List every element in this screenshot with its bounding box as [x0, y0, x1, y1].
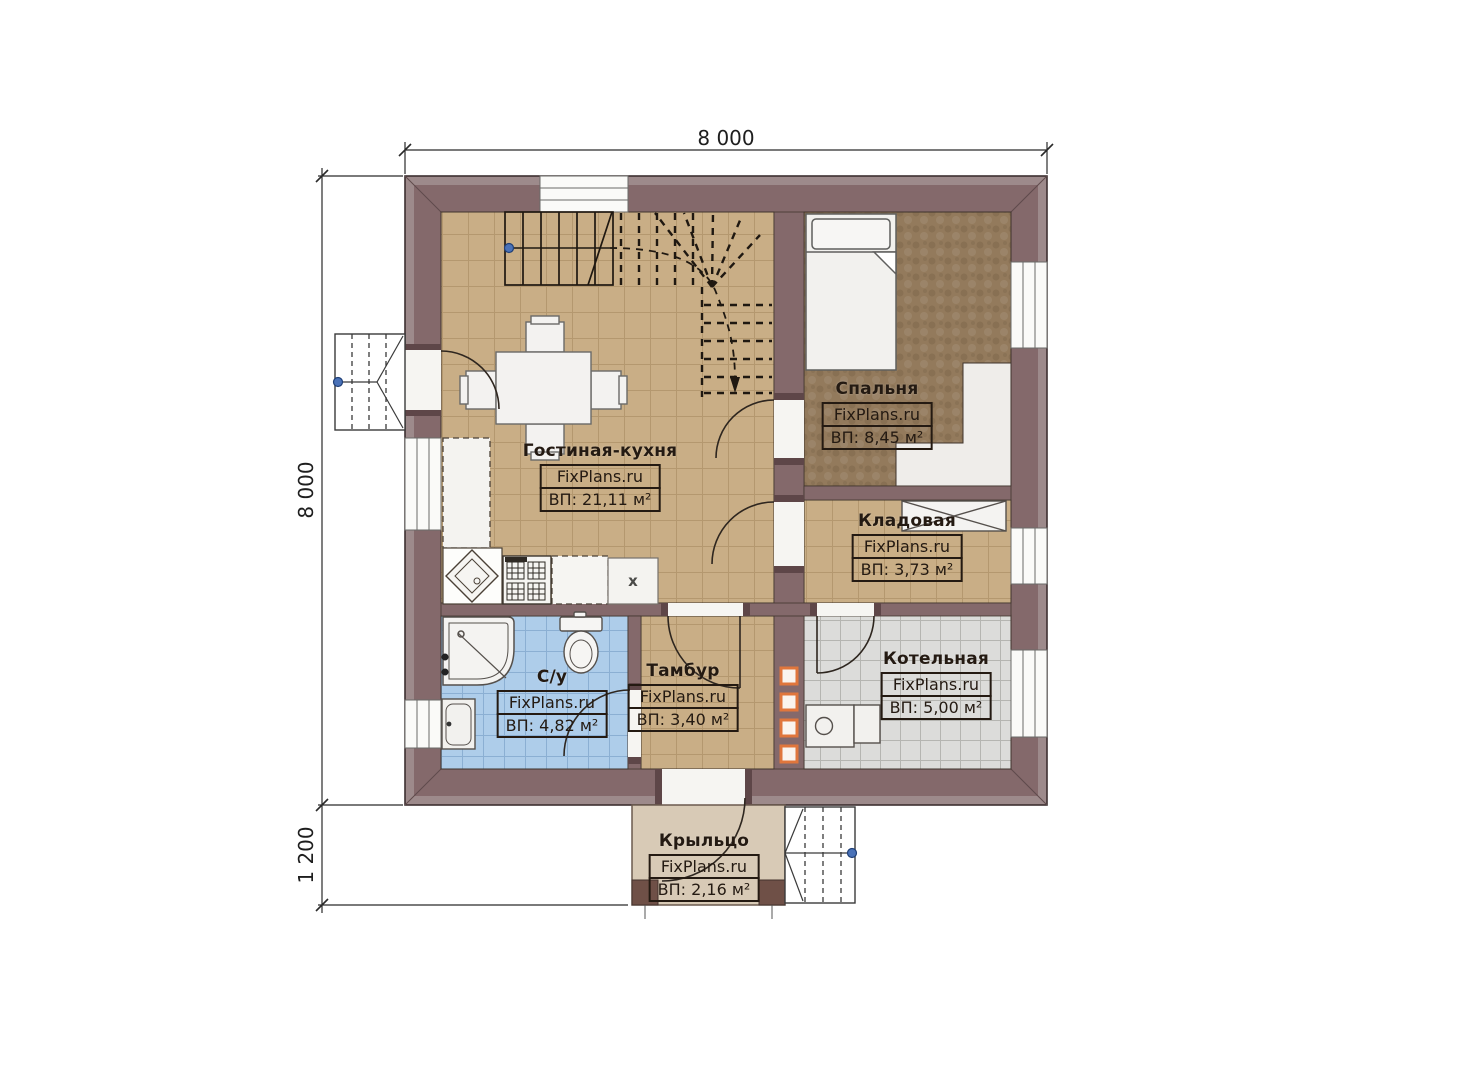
- window-left-bathroom: [405, 700, 441, 748]
- watermark-brand: FixPlans.ru: [852, 534, 963, 559]
- boiler-unit: [806, 705, 880, 747]
- window-right-storage: [1011, 528, 1047, 584]
- room-name: Котельная: [881, 649, 992, 669]
- window-right-bedroom: [1011, 262, 1047, 348]
- room-label-bathroom: С/у FixPlans.ru ВП: 4,82 м²: [497, 667, 608, 738]
- watermark-brand: FixPlans.ru: [540, 464, 661, 489]
- room-label-boiler-room: Котельная FixPlans.ru ВП: 5,00 м²: [881, 649, 992, 720]
- chair: [466, 371, 496, 409]
- side-entrance-steps: [335, 334, 405, 430]
- room-name: Гостиная-кухня: [523, 441, 678, 461]
- room-area: ВП: 5,00 м²: [881, 695, 992, 720]
- dimension-top-width: 8 000: [697, 126, 754, 150]
- room-area: ВП: 3,73 м²: [852, 557, 963, 582]
- room-name: Тамбур: [628, 661, 739, 681]
- fridge-label: x: [628, 572, 638, 590]
- toilet: [560, 612, 602, 673]
- window-left-kitchen: [405, 438, 441, 530]
- floor-plan: 8 000 8 000 1 200 x Гостиная-кухня FixPl…: [0, 0, 1473, 1080]
- watermark-brand: FixPlans.ru: [822, 402, 933, 427]
- room-name: Спальня: [822, 379, 933, 399]
- bedroom-storage-wall: [804, 486, 1011, 500]
- watermark-brand: FixPlans.ru: [497, 690, 608, 715]
- floor-plan-canvas: [0, 0, 1473, 1080]
- pillow: [812, 219, 890, 249]
- watermark-box: FixPlans.ru ВП: 21,11 м²: [540, 464, 661, 512]
- watermark-box: FixPlans.ru ВП: 2,16 м²: [649, 854, 760, 902]
- chair: [591, 371, 621, 409]
- side-steps-marker-dot: [334, 378, 343, 387]
- porch-steps: [785, 807, 855, 903]
- shower-valve: [442, 669, 449, 676]
- room-area: ВП: 4,82 м²: [497, 713, 608, 738]
- stove: [503, 556, 551, 604]
- watermark-box: FixPlans.ru ВП: 3,40 м²: [628, 684, 739, 732]
- kitchen-counter: [552, 556, 608, 604]
- watermark-brand: FixPlans.ru: [881, 672, 992, 697]
- kitchen-counter-vertical: [443, 438, 490, 548]
- room-area: ВП: 8,45 м²: [822, 425, 933, 450]
- watermark-box: FixPlans.ru ВП: 3,73 м²: [852, 534, 963, 582]
- watermark-brand: FixPlans.ru: [649, 854, 760, 879]
- room-label-storage: Кладовая FixPlans.ru ВП: 3,73 м²: [852, 511, 963, 582]
- watermark-brand: FixPlans.ru: [628, 684, 739, 709]
- room-area: ВП: 21,11 м²: [540, 487, 661, 512]
- window-right-boiler: [1011, 650, 1047, 737]
- stove-controls: [505, 557, 527, 562]
- room-name: Крыльцо: [649, 831, 760, 851]
- room-area: ВП: 2,16 м²: [649, 877, 760, 902]
- shower-valve: [442, 654, 449, 661]
- watermark-box: FixPlans.ru ВП: 8,45 м²: [822, 402, 933, 450]
- window-top-living: [540, 176, 628, 212]
- room-name: С/у: [497, 667, 608, 687]
- porch-steps-marker-dot: [848, 849, 857, 858]
- dimension-porch-depth: 1 200: [294, 826, 318, 883]
- room-label-bedroom: Спальня FixPlans.ru ВП: 8,45 м²: [822, 379, 933, 450]
- room-label-living-kitchen: Гостиная-кухня FixPlans.ru ВП: 21,11 м²: [523, 441, 678, 512]
- watermark-box: FixPlans.ru ВП: 5,00 м²: [881, 672, 992, 720]
- bathroom-sink: [442, 699, 475, 749]
- chair: [526, 322, 564, 352]
- room-name: Кладовая: [852, 511, 963, 531]
- room-label-porch: Крыльцо FixPlans.ru ВП: 2,16 м²: [649, 831, 760, 902]
- dimension-left-height: 8 000: [294, 461, 318, 518]
- bed: [806, 214, 896, 370]
- dining-table: [496, 352, 591, 424]
- room-area: ВП: 3,40 м²: [628, 707, 739, 732]
- stair-marker-dot: [505, 244, 514, 253]
- watermark-box: FixPlans.ru ВП: 4,82 м²: [497, 690, 608, 738]
- room-label-vestibule: Тамбур FixPlans.ru ВП: 3,40 м²: [628, 661, 739, 732]
- porch-post: [759, 880, 785, 905]
